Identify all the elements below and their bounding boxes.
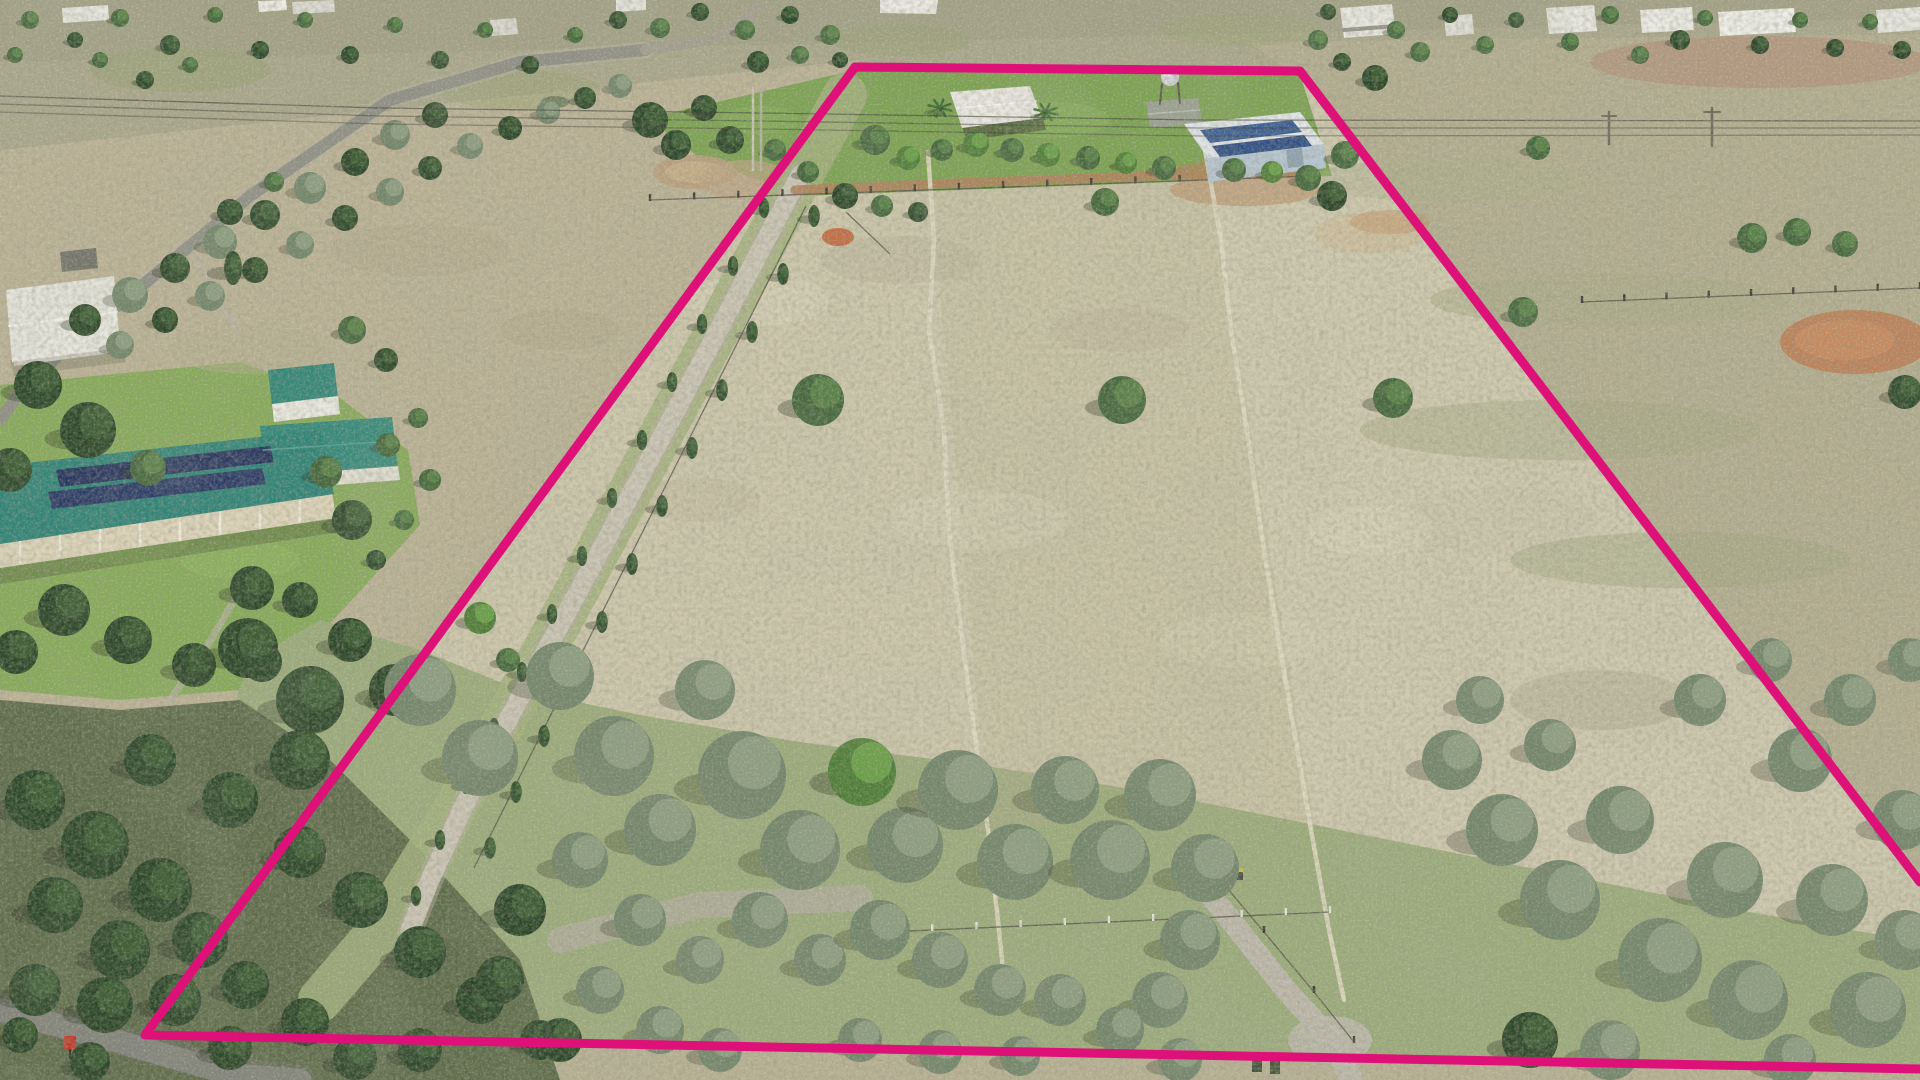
aerial-property-photo bbox=[0, 0, 1920, 1080]
photo-grain-light bbox=[0, 0, 1920, 1080]
aerial-photo-canvas bbox=[0, 0, 1920, 1080]
